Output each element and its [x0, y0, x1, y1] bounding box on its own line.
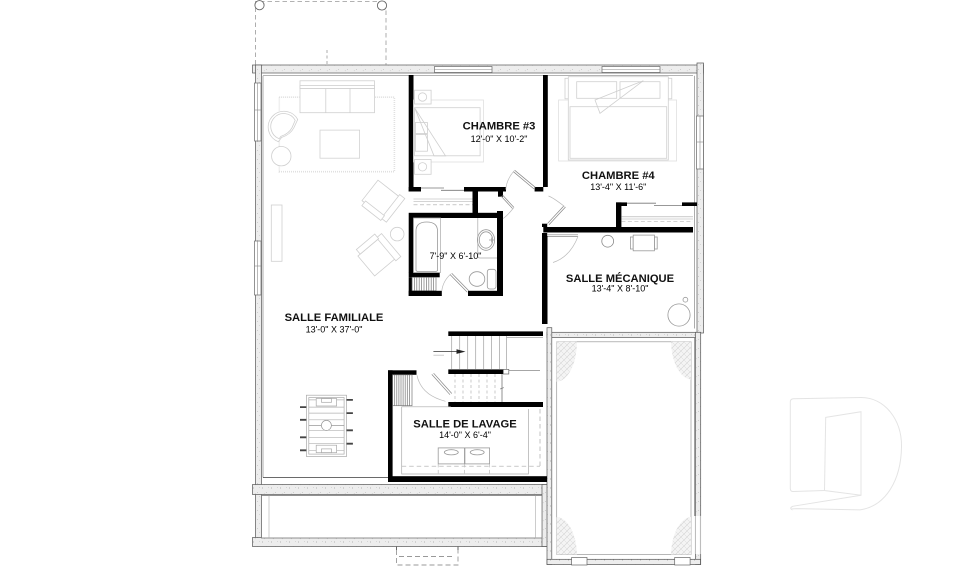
svg-text:13'-4" X 11'-6": 13'-4" X 11'-6"	[590, 182, 646, 192]
svg-text:14'-0" X 6'-4": 14'-0" X 6'-4"	[439, 430, 491, 440]
svg-text:13'-0" X 37'-0": 13'-0" X 37'-0"	[306, 325, 363, 335]
svg-text:SALLE DE LAVAGE: SALLE DE LAVAGE	[413, 419, 517, 431]
svg-text:SALLE FAMILIALE: SALLE FAMILIALE	[285, 312, 384, 324]
svg-text:13'-4" X 8'-10": 13'-4" X 8'-10"	[592, 284, 649, 294]
svg-text:CHAMBRE #4: CHAMBRE #4	[582, 170, 656, 182]
svg-text:CHAMBRE #3: CHAMBRE #3	[463, 121, 536, 133]
svg-text:12'-0" X 10'-2": 12'-0" X 10'-2"	[471, 134, 528, 144]
svg-text:7'-9" X 6'-10": 7'-9" X 6'-10"	[430, 251, 482, 261]
